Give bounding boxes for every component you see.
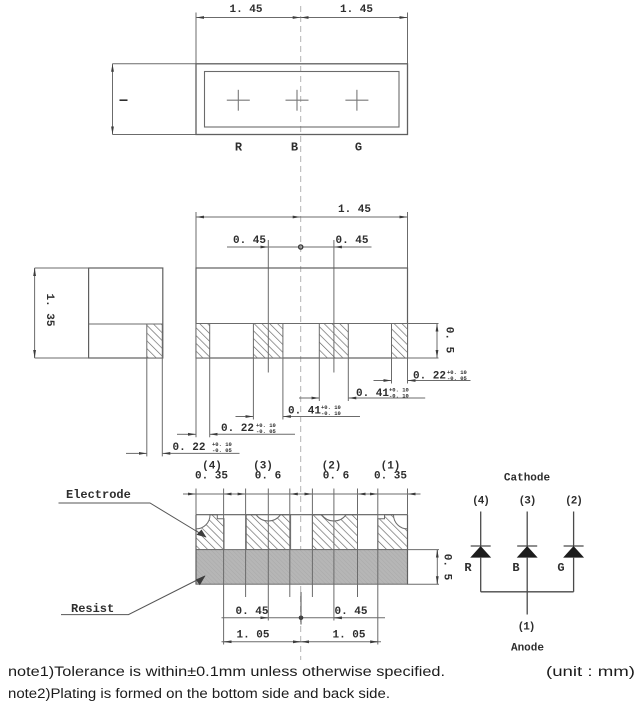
svg-text:(3): (3) [519, 496, 536, 508]
svg-text:0. 6: 0. 6 [255, 471, 281, 483]
svg-text:-0. 10: -0. 10 [321, 410, 341, 417]
svg-text:note1)Tolerance is within±0.1m: note1)Tolerance is within±0.1mm unless o… [8, 664, 445, 680]
svg-text:-0. 05: -0. 05 [256, 428, 277, 435]
svg-text:0. 41: 0. 41 [356, 388, 389, 400]
svg-text:0. 5: 0. 5 [443, 327, 455, 354]
svg-text:Resist: Resist [71, 602, 114, 616]
svg-text:-0. 10: -0. 10 [389, 393, 409, 400]
svg-text:0. 41: 0. 41 [288, 406, 321, 418]
svg-text:1. 35: 1. 35 [43, 293, 55, 326]
svg-text:0. 22: 0. 22 [413, 371, 446, 383]
svg-text:1. 05: 1. 05 [332, 630, 365, 642]
svg-text:1. 45: 1. 45 [338, 204, 371, 216]
svg-text:(unit : mm): (unit : mm) [546, 664, 635, 680]
svg-text:0. 45: 0. 45 [235, 606, 268, 618]
svg-text:0. 35: 0. 35 [195, 471, 228, 483]
svg-text:1. 45: 1. 45 [340, 4, 373, 16]
svg-text:0. 22: 0. 22 [173, 442, 206, 454]
svg-text:Anode: Anode [511, 643, 544, 655]
svg-text:0. 5: 0. 5 [441, 554, 453, 581]
svg-text:-0. 05: -0. 05 [212, 447, 233, 454]
svg-text:-0. 05: -0. 05 [447, 375, 468, 382]
svg-text:G: G [355, 141, 362, 155]
svg-text:Electrode: Electrode [66, 488, 131, 502]
svg-text:0. 35: 0. 35 [374, 471, 407, 483]
svg-text:(2): (2) [565, 496, 582, 508]
svg-text:R: R [235, 141, 243, 155]
svg-text:0. 45: 0. 45 [233, 235, 266, 247]
svg-text:(4): (4) [472, 496, 489, 508]
svg-text:G: G [557, 561, 564, 575]
svg-text:1. 45: 1. 45 [229, 4, 262, 16]
svg-text:Cathode: Cathode [504, 473, 551, 485]
svg-text:0. 6: 0. 6 [323, 471, 349, 483]
svg-text:R: R [464, 561, 472, 575]
svg-text:B: B [512, 561, 519, 575]
svg-text:B: B [291, 141, 298, 155]
svg-text:(1): (1) [518, 622, 535, 634]
svg-text:note2)Plating is formed on the: note2)Plating is formed on the bottom si… [8, 686, 390, 702]
svg-text:0. 45: 0. 45 [335, 235, 368, 247]
svg-text:0. 45: 0. 45 [334, 606, 367, 618]
svg-text:0. 22: 0. 22 [221, 423, 254, 435]
svg-text:1. 05: 1. 05 [236, 630, 269, 642]
